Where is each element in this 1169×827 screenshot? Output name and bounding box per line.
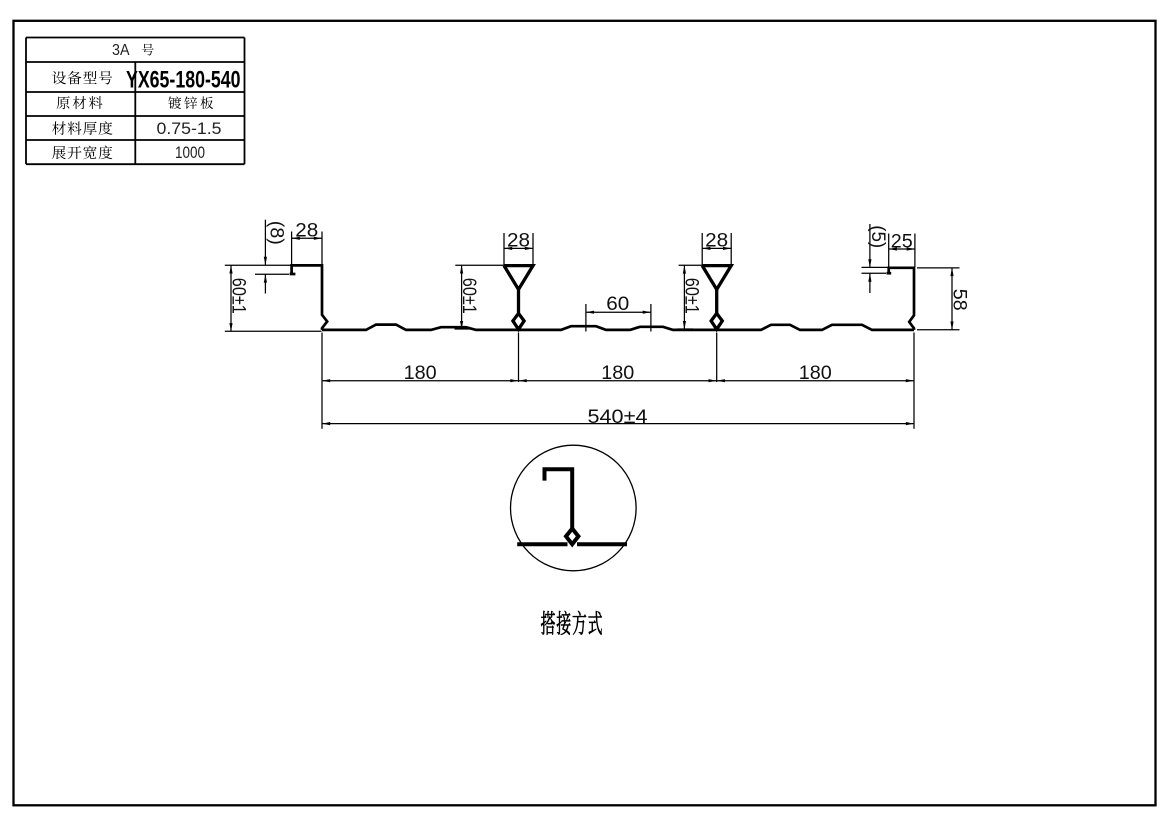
svg-text:1000: 1000 bbox=[175, 143, 205, 162]
svg-text:28: 28 bbox=[705, 231, 728, 252]
svg-text:(8): (8) bbox=[266, 221, 287, 245]
svg-text:60±1: 60±1 bbox=[681, 278, 702, 314]
svg-text:540±4: 540±4 bbox=[588, 407, 648, 428]
svg-text:58: 58 bbox=[949, 289, 970, 311]
svg-text:YX65-180-540: YX65-180-540 bbox=[126, 67, 241, 94]
svg-text:60±1: 60±1 bbox=[458, 278, 479, 314]
svg-text:3A: 3A bbox=[112, 42, 130, 59]
svg-text:180: 180 bbox=[799, 363, 832, 384]
svg-text:28: 28 bbox=[295, 221, 318, 242]
svg-text:25: 25 bbox=[891, 232, 913, 253]
svg-text:180: 180 bbox=[404, 363, 437, 384]
svg-text:0.75-1.5: 0.75-1.5 bbox=[157, 119, 222, 138]
svg-text:(5): (5) bbox=[867, 225, 888, 248]
svg-text:60±1: 60±1 bbox=[227, 278, 248, 314]
svg-text:28: 28 bbox=[507, 231, 530, 252]
svg-text:180: 180 bbox=[601, 363, 634, 384]
svg-text:60: 60 bbox=[606, 294, 629, 315]
